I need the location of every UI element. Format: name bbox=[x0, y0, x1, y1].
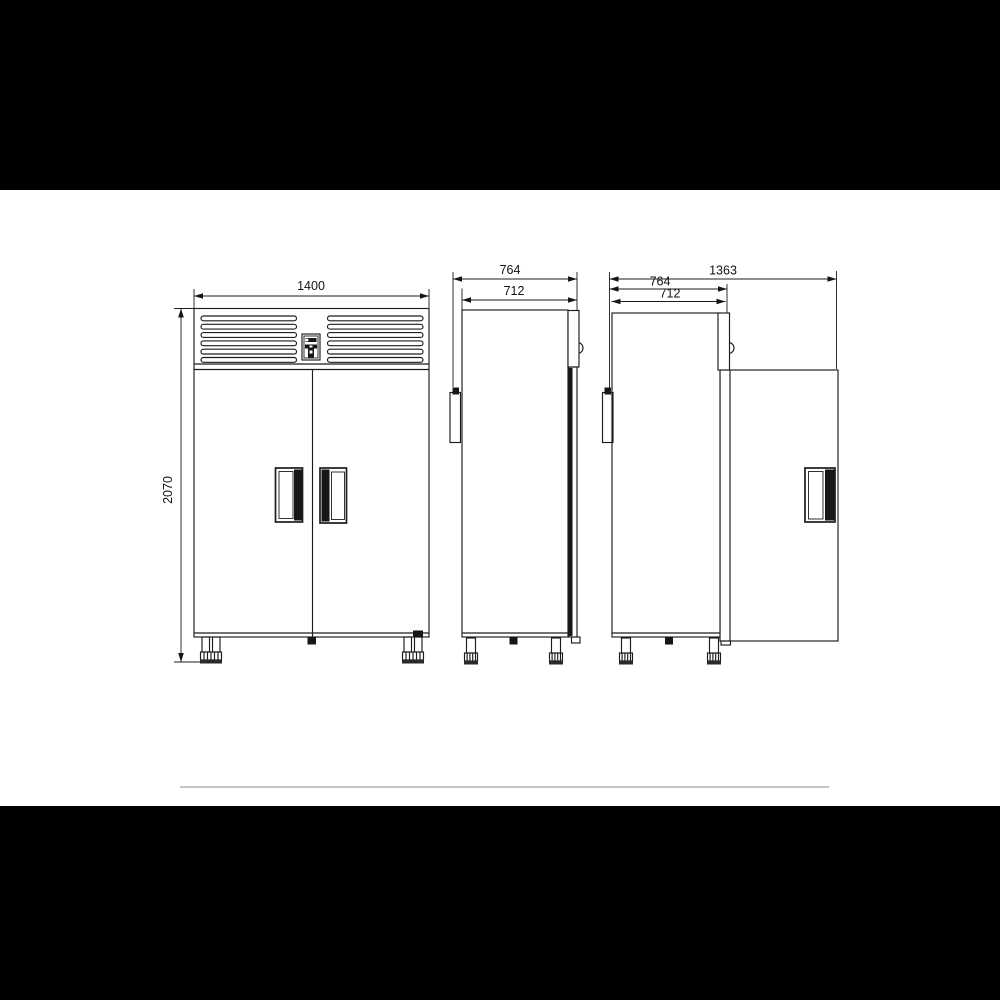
controller-panel bbox=[302, 334, 320, 360]
front-outlet bbox=[413, 631, 423, 637]
vent-louvers-right bbox=[328, 316, 424, 362]
open-door-handle bbox=[805, 468, 835, 522]
front-right-foot bbox=[402, 637, 424, 664]
letterbox-bottom bbox=[0, 806, 1000, 1000]
right-door-handle bbox=[320, 468, 347, 523]
side-body-depth-label: 712 bbox=[504, 284, 525, 298]
vent-panel-separator bbox=[194, 364, 429, 370]
dimension-side-overall-depth: 764 bbox=[453, 263, 577, 387]
open-rear-foot bbox=[707, 638, 721, 665]
side-body-outline bbox=[462, 310, 568, 637]
front-drain bbox=[308, 637, 317, 645]
side-view-open: 1363 764 712 bbox=[603, 264, 839, 665]
open-door-top-cap bbox=[718, 313, 730, 370]
section-divider-line bbox=[180, 786, 829, 788]
closed-door-edge bbox=[569, 367, 580, 643]
letterbox-top bbox=[0, 0, 1000, 190]
side-front-foot bbox=[464, 638, 478, 665]
open-body-outline bbox=[612, 313, 720, 637]
product-image-viewer: 1400 2070 bbox=[0, 0, 1000, 1000]
open-overall-label: 1363 bbox=[709, 264, 737, 278]
side-view-closed: 764 712 bbox=[450, 263, 583, 665]
side-drain bbox=[510, 638, 518, 645]
open-body-depth-label: 712 bbox=[660, 287, 681, 301]
side-hinge-block bbox=[450, 388, 461, 443]
open-hinge-block bbox=[603, 388, 614, 443]
dimension-front-height: 2070 bbox=[161, 309, 202, 663]
open-front-foot bbox=[619, 638, 633, 665]
front-view: 1400 2070 bbox=[161, 279, 429, 664]
vent-louvers-left bbox=[201, 316, 297, 362]
open-drain bbox=[665, 638, 673, 645]
side-rear-foot bbox=[549, 638, 563, 665]
side-overall-depth-label: 764 bbox=[500, 263, 521, 277]
front-height-label: 2070 bbox=[161, 476, 175, 504]
door-top-cap bbox=[568, 311, 579, 368]
left-door-handle bbox=[276, 468, 303, 522]
dimension-front-width: 1400 bbox=[194, 279, 429, 308]
open-door-leaf bbox=[720, 370, 838, 645]
front-left-foot bbox=[200, 637, 222, 664]
dimension-side-body-depth: 712 bbox=[462, 284, 577, 310]
front-width-label: 1400 bbox=[297, 279, 325, 293]
